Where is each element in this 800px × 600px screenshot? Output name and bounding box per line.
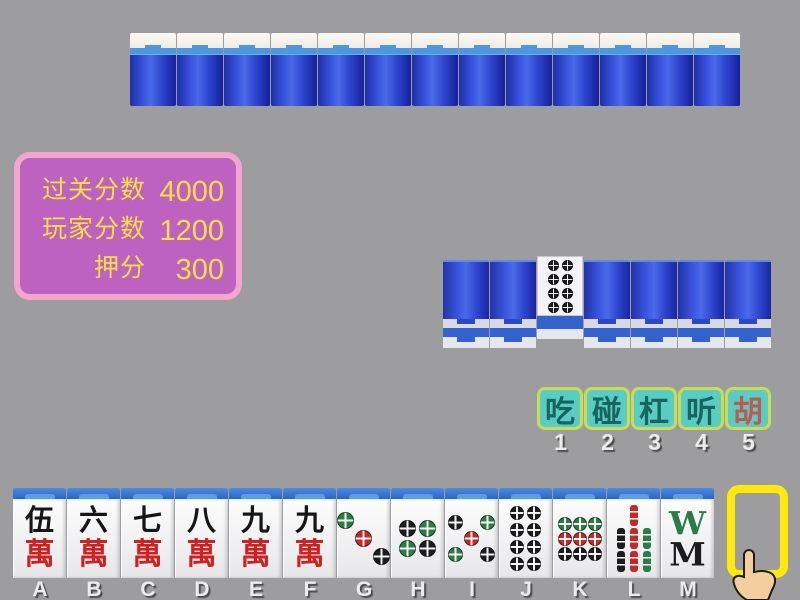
bamboo-row <box>617 528 651 549</box>
wan-number-char: 七 <box>133 504 162 537</box>
peng-button[interactable]: 碰 <box>584 387 630 430</box>
tile-back-body <box>130 54 176 106</box>
tile-face: 九萬 <box>229 499 282 578</box>
bamboo-7-pattern <box>617 505 651 572</box>
tile-face: 伍萬 <box>13 499 66 578</box>
opponent-tile-back <box>224 33 270 105</box>
wan-number-char: 九 <box>241 504 270 537</box>
tile-face <box>445 499 498 578</box>
tile-back-tab <box>333 45 349 50</box>
tile-back-tab <box>192 45 208 50</box>
pass-score-label: 过关分数 <box>30 170 146 206</box>
tile-edge-band <box>631 328 677 337</box>
action-button-bar: 吃碰杠听胡 <box>537 387 771 430</box>
hand-tile-L-bamboo-7[interactable] <box>607 488 660 578</box>
dot-green <box>588 517 602 531</box>
tile-edge-tab <box>598 337 616 342</box>
dot-black <box>510 506 524 520</box>
tile-back-tab <box>568 45 584 50</box>
tile-edge-tab <box>645 337 663 342</box>
dot-black <box>527 506 541 520</box>
tile-face: 六萬 <box>67 499 120 578</box>
dot-green <box>337 512 354 529</box>
bet-score-row: 押分 300 <box>30 248 224 284</box>
opponent-tile-back <box>694 33 740 105</box>
wan-number-char: 六 <box>79 504 108 537</box>
dot-black <box>510 540 524 554</box>
tile-top-edge <box>607 488 660 499</box>
bamboo-stick-black <box>617 528 625 549</box>
tile-edge-band <box>678 319 724 328</box>
tile-edge-band <box>725 319 771 328</box>
wan-number-char: 八 <box>187 504 216 537</box>
tile-face: 九萬 <box>283 499 336 578</box>
dots-3-pattern <box>337 512 390 565</box>
slot-letter-H: H <box>391 578 445 600</box>
action-key-4: 4 <box>678 429 725 456</box>
tile-back-cap <box>271 33 317 48</box>
tile-back-tab <box>427 45 443 50</box>
dot-black <box>510 523 524 537</box>
tile-edge-tab <box>739 337 757 342</box>
dot-green <box>573 517 587 531</box>
upper-player-tile-row <box>443 256 772 348</box>
tile-top-tab <box>133 494 163 499</box>
tile-back-body <box>725 260 771 319</box>
middle-tile-back <box>490 256 536 348</box>
tile-top-tab <box>187 494 217 499</box>
tile-top-edge <box>175 488 228 499</box>
dot-black <box>527 557 541 571</box>
tile-back-body <box>506 54 552 106</box>
pass-score-value: 4000 <box>146 176 224 209</box>
tile-back-cap <box>506 33 552 48</box>
tile-back-tab <box>145 45 161 50</box>
tile-top-edge <box>121 488 174 499</box>
bamboo-glyph-black: M <box>669 539 706 568</box>
tile-edge-band <box>584 319 630 328</box>
slot-letter-M: M <box>661 578 715 600</box>
tile-top-edge <box>337 488 390 499</box>
tile-top-tab <box>565 494 595 499</box>
slot-letter-L: L <box>607 578 661 600</box>
dot-green <box>558 517 572 531</box>
tile-top-tab <box>619 494 649 499</box>
hand-tile-D-wan-8[interactable]: 八萬 <box>175 488 228 578</box>
slot-letter-J: J <box>499 578 553 600</box>
slot-letter-K: K <box>553 578 607 600</box>
player-hand-row: 伍萬六萬七萬八萬九萬九萬WM <box>13 488 715 578</box>
tile-edge-band <box>631 337 677 348</box>
slot-letter-G: G <box>337 578 391 600</box>
tile-top-edge <box>661 488 714 499</box>
dot-black <box>527 523 541 537</box>
tile-edge-band <box>537 316 583 329</box>
tile-edge-band <box>584 328 630 337</box>
hu-button[interactable]: 胡 <box>725 387 771 430</box>
middle-tile-back <box>443 256 489 348</box>
bamboo-row <box>617 505 651 526</box>
dots-8-pattern <box>548 260 573 313</box>
slot-letter-F: F <box>283 578 337 600</box>
tile-top-tab <box>673 494 703 499</box>
tile-back-body <box>412 54 458 106</box>
slot-letter-A: A <box>13 578 67 600</box>
tile-edge-tab <box>504 337 522 342</box>
dot-red <box>588 532 602 546</box>
bamboo-stick-red <box>630 551 638 572</box>
tile-back-cap <box>600 33 646 48</box>
tile-back-tab <box>521 45 537 50</box>
slot-letter-E: E <box>229 578 283 600</box>
dot-black <box>510 557 524 571</box>
bamboo-stick-red <box>630 505 638 526</box>
tile-back-body <box>490 260 536 319</box>
wan-character: 萬 <box>133 537 163 573</box>
tile-edge-band <box>490 337 536 348</box>
tile-back-cap <box>694 33 740 48</box>
tile-top-tab <box>349 494 379 499</box>
tile-face <box>553 499 606 578</box>
tile-back-cap <box>365 33 411 48</box>
opponent-tile-back <box>553 33 599 105</box>
tile-back-body <box>631 260 677 319</box>
dot-black <box>527 540 541 554</box>
tile-back-tab <box>709 45 725 50</box>
wan-character: 萬 <box>25 537 55 573</box>
tile-edge-tab <box>598 319 616 324</box>
tile-edge-band <box>443 328 489 337</box>
action-key-5: 5 <box>725 429 772 456</box>
middle-tile-back <box>678 256 724 348</box>
tile-edge-tab <box>739 319 757 324</box>
tile-edge-tab <box>645 319 663 324</box>
tile-face: WM <box>661 499 714 578</box>
tile-top-tab <box>511 494 541 499</box>
slot-letter-I: I <box>445 578 499 600</box>
dots-5-pattern <box>448 515 495 562</box>
bamboo-stick-black <box>617 551 625 572</box>
dot-red <box>355 530 372 547</box>
opponent-hand-row <box>130 33 741 105</box>
tile-back-cap <box>647 33 693 48</box>
tile-face <box>537 256 583 316</box>
wan-character: 萬 <box>79 537 109 573</box>
opponent-tile-back <box>365 33 411 105</box>
dot-green <box>480 515 495 530</box>
tile-top-edge <box>229 488 282 499</box>
opponent-tile-back <box>130 33 176 105</box>
middle-tile-face-up-dots-8 <box>537 256 583 339</box>
tile-edge-tab <box>457 319 475 324</box>
wan-character: 萬 <box>241 537 271 573</box>
tile-edge-band <box>537 329 583 339</box>
tile-back-body <box>694 54 740 106</box>
pointing-hand-cursor <box>720 548 778 600</box>
hand-tile-A-wan-5[interactable]: 伍萬 <box>13 488 66 578</box>
opponent-tile-back <box>506 33 552 105</box>
score-panel: 过关分数 4000 玩家分数 1200 押分 300 <box>14 152 242 300</box>
slot-letter-C: C <box>121 578 175 600</box>
tile-edge-band <box>725 328 771 337</box>
tile-edge-band <box>631 319 677 328</box>
tile-face <box>499 499 552 578</box>
dot-black <box>558 547 572 561</box>
tile-top-edge <box>391 488 444 499</box>
dot-red <box>558 532 572 546</box>
tile-edge-band <box>678 328 724 337</box>
dots-4-pattern <box>399 520 436 557</box>
tile-back-body <box>318 54 364 106</box>
hand-tile-C-wan-7[interactable]: 七萬 <box>121 488 174 578</box>
opponent-tile-back <box>412 33 458 105</box>
tile-back-tab <box>239 45 255 50</box>
opponent-tile-back <box>177 33 223 105</box>
middle-tile-back <box>725 256 771 348</box>
tile-face: 八萬 <box>175 499 228 578</box>
tile-back-body <box>177 54 223 106</box>
tile-back-body <box>584 260 630 319</box>
hand-tile-F-wan-9[interactable]: 九萬 <box>283 488 336 578</box>
dot-black <box>399 520 416 537</box>
tile-back-tab <box>662 45 678 50</box>
bamboo-8-pattern: WM <box>669 508 706 570</box>
dot-black <box>573 547 587 561</box>
opponent-tile-back <box>318 33 364 105</box>
chi-button[interactable]: 吃 <box>537 387 583 430</box>
tile-top-edge <box>67 488 120 499</box>
bamboo-glyph-green: W <box>669 508 706 537</box>
tile-back-body <box>224 54 270 106</box>
hand-tile-B-wan-6[interactable]: 六萬 <box>67 488 120 578</box>
slot-letter-B: B <box>67 578 121 600</box>
tile-edge-tab <box>504 319 522 324</box>
tile-top-edge <box>283 488 336 499</box>
tile-back-body <box>678 260 724 319</box>
tile-back-tab <box>615 45 631 50</box>
tile-edge-band <box>490 328 536 337</box>
tile-top-tab <box>295 494 325 499</box>
middle-tile-back <box>584 256 630 348</box>
hand-shape <box>733 550 775 600</box>
tile-back-body <box>647 54 693 106</box>
tile-back-body <box>365 54 411 106</box>
player-score-row: 玩家分数 1200 <box>30 209 224 245</box>
hand-tile-I-dots-5[interactable] <box>445 488 498 578</box>
tile-back-body <box>553 54 599 106</box>
dot-black <box>373 548 390 565</box>
gang-button[interactable]: 杠 <box>631 387 677 430</box>
opponent-tile-back <box>647 33 693 105</box>
tile-top-edge <box>13 488 66 499</box>
tile-back-cap <box>412 33 458 48</box>
dot-black <box>548 288 559 299</box>
tile-edge-band <box>678 337 724 348</box>
action-key-3: 3 <box>631 429 678 456</box>
dot-red <box>573 532 587 546</box>
slot-letter-D: D <box>175 578 229 600</box>
tile-edge-tab <box>457 337 475 342</box>
dot-black <box>588 547 602 561</box>
action-key-1: 1 <box>537 429 584 456</box>
tile-back-tab <box>380 45 396 50</box>
tile-top-tab <box>79 494 109 499</box>
tile-back-cap <box>177 33 223 48</box>
tile-top-tab <box>25 494 55 499</box>
pass-score-row: 过关分数 4000 <box>30 170 224 206</box>
bamboo-stick-green <box>643 528 651 549</box>
tile-back-cap <box>553 33 599 48</box>
dot-black <box>562 288 573 299</box>
action-key-numbers: 12345 <box>537 429 772 456</box>
hand-tile-J-dots-8[interactable] <box>499 488 552 578</box>
bet-score-value: 300 <box>146 254 224 287</box>
hand-tile-K-dots-9[interactable] <box>553 488 606 578</box>
wan-number-char: 九 <box>295 504 324 537</box>
dot-black <box>562 274 573 285</box>
tile-top-edge <box>499 488 552 499</box>
tile-top-tab <box>241 494 271 499</box>
dot-green <box>448 547 463 562</box>
opponent-tile-back <box>600 33 646 105</box>
dot-red <box>464 531 479 546</box>
bamboo-row <box>617 551 651 572</box>
tile-top-edge <box>553 488 606 499</box>
dot-black <box>562 302 573 313</box>
dot-black <box>448 515 463 530</box>
tile-edge-tab <box>692 319 710 324</box>
tile-top-tab <box>457 494 487 499</box>
wan-number-char: 伍 <box>25 504 54 537</box>
tile-edge-band <box>443 319 489 328</box>
dot-black <box>562 260 573 271</box>
tile-back-cap <box>224 33 270 48</box>
wan-character: 萬 <box>295 537 325 573</box>
dots-9-pattern <box>558 517 602 561</box>
middle-tile-back <box>631 256 677 348</box>
action-key-2: 2 <box>584 429 631 456</box>
tile-face: 七萬 <box>121 499 174 578</box>
tile-top-edge <box>445 488 498 499</box>
hand-tile-M-bamboo-8[interactable]: WM <box>661 488 714 578</box>
bamboo-stick-green <box>643 551 651 572</box>
dot-black <box>548 260 559 271</box>
tile-back-tab <box>286 45 302 50</box>
game-table: 过关分数 4000 玩家分数 1200 押分 300 吃碰杠听胡 12345 伍… <box>0 0 800 600</box>
tile-face <box>337 499 390 578</box>
tile-back-body <box>271 54 317 106</box>
tile-back-tab <box>474 45 490 50</box>
hand-tile-G-dots-3[interactable] <box>337 488 390 578</box>
hand-tile-E-wan-9[interactable]: 九萬 <box>229 488 282 578</box>
tile-back-body <box>459 54 505 106</box>
dot-black <box>548 302 559 313</box>
ting-button[interactable]: 听 <box>678 387 724 430</box>
tile-edge-band <box>490 319 536 328</box>
wan-character: 萬 <box>187 537 217 573</box>
hand-tile-H-dots-4[interactable] <box>391 488 444 578</box>
tile-back-cap <box>459 33 505 48</box>
tile-back-body <box>600 54 646 106</box>
dot-black <box>419 540 436 557</box>
opponent-tile-back <box>459 33 505 105</box>
tile-back-body <box>443 260 489 319</box>
tile-edge-tab <box>692 337 710 342</box>
hand-slot-letters: ABCDEFGHIJKLM <box>13 578 715 600</box>
dot-green <box>419 520 436 537</box>
bamboo-stick-red <box>630 528 638 549</box>
tile-back-cap <box>130 33 176 48</box>
player-score-label: 玩家分数 <box>30 209 146 245</box>
tile-edge-band <box>443 337 489 348</box>
tile-edge-band <box>725 337 771 348</box>
dots-8-pattern <box>510 506 541 571</box>
tile-edge-band <box>584 337 630 348</box>
opponent-tile-back <box>271 33 317 105</box>
dot-black <box>480 547 495 562</box>
dot-green <box>399 540 416 557</box>
tile-top-tab <box>403 494 433 499</box>
tile-back-cap <box>318 33 364 48</box>
tile-face <box>391 499 444 578</box>
tile-face <box>607 499 660 578</box>
dot-black <box>548 274 559 285</box>
player-score-value: 1200 <box>146 215 224 248</box>
bet-score-label: 押分 <box>30 248 146 284</box>
